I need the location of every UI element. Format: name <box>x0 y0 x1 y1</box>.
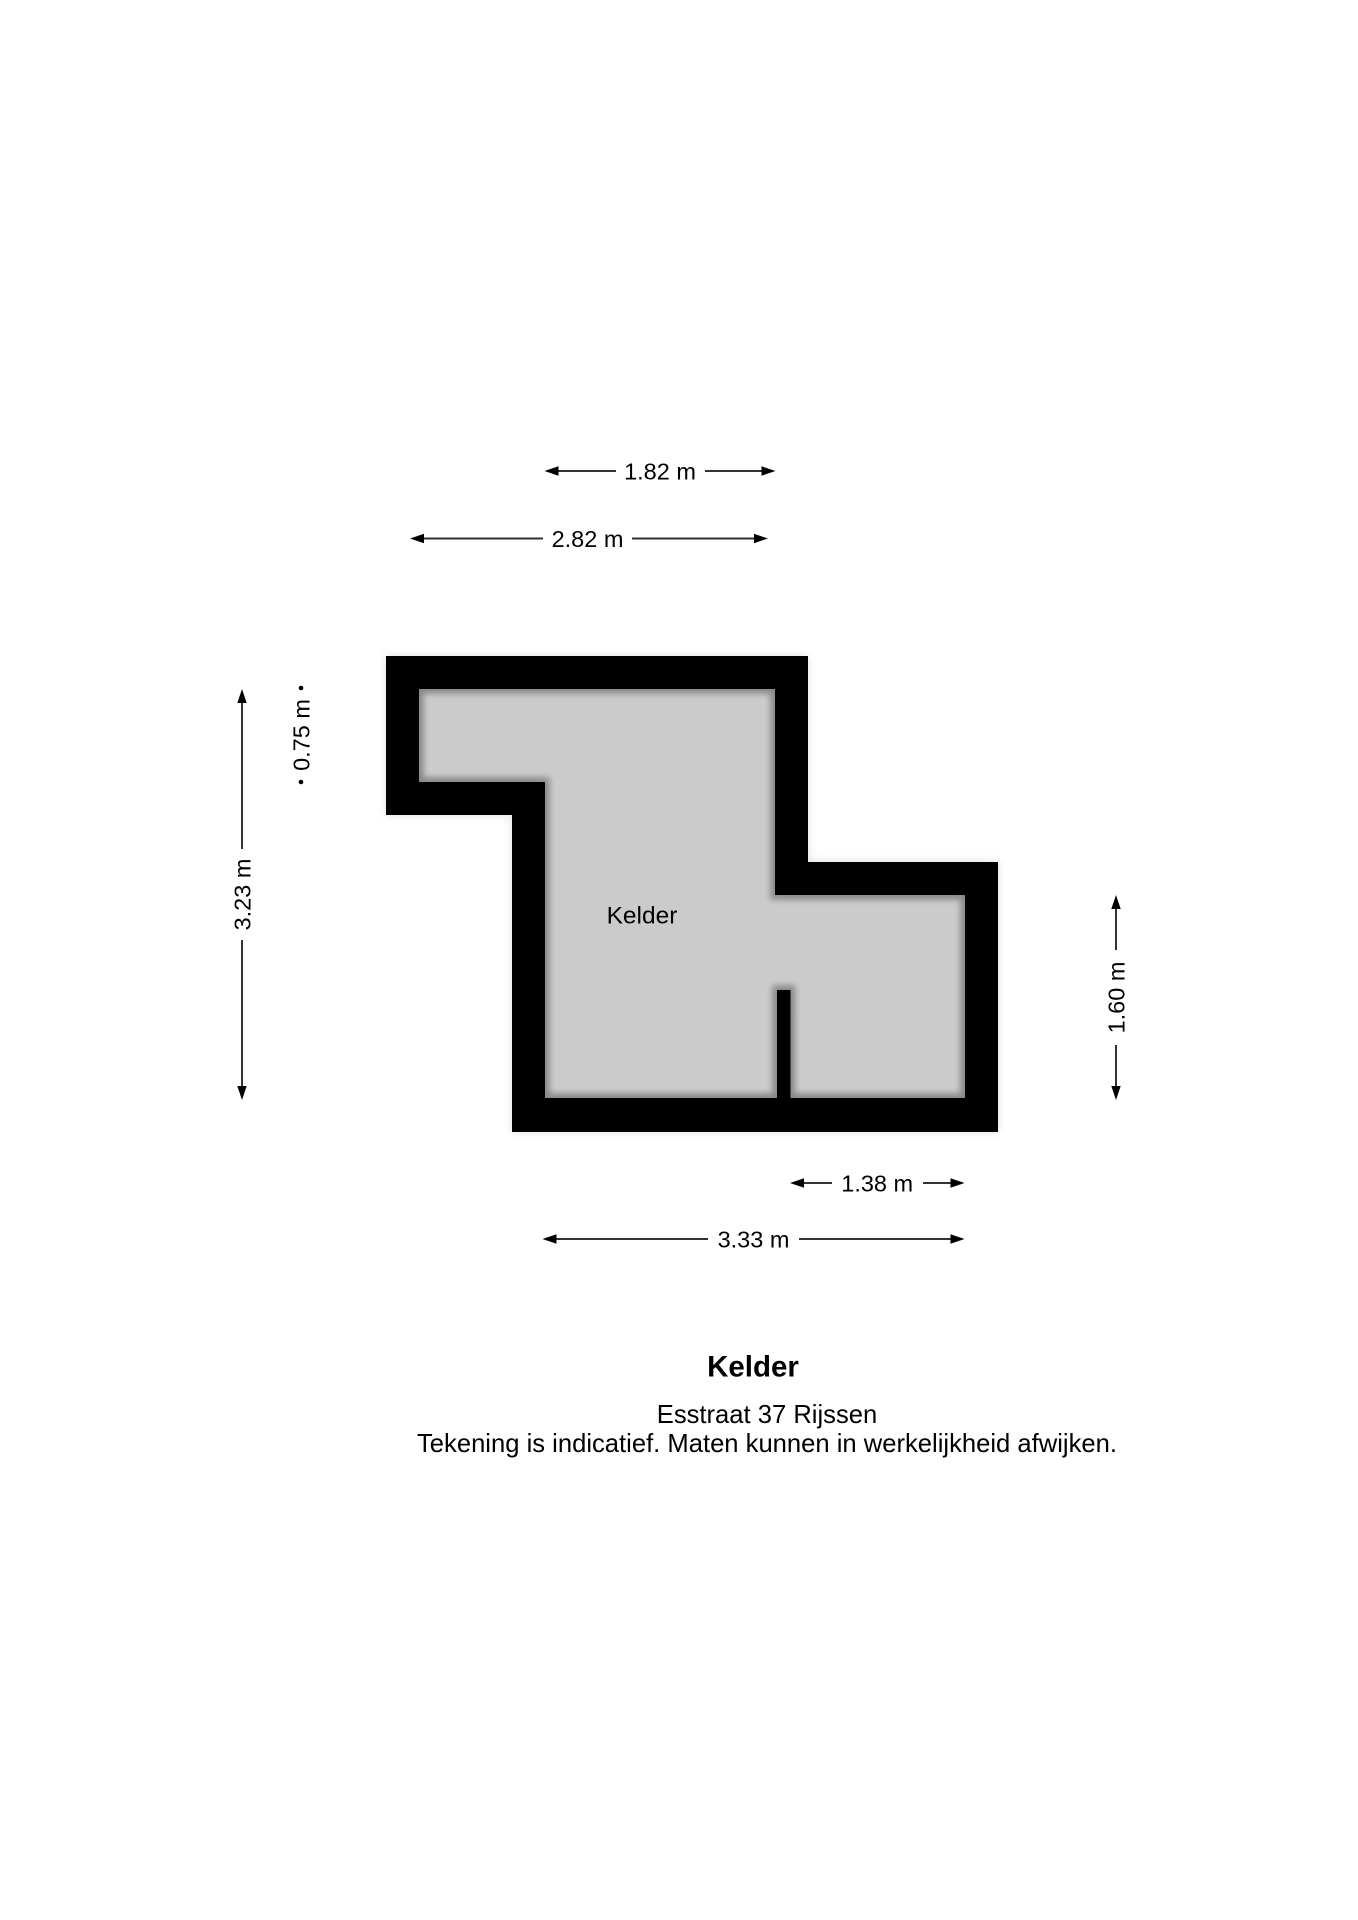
svg-text:1.82 m: 1.82 m <box>624 458 696 484</box>
svg-text:1.60 m: 1.60 m <box>1103 962 1129 1034</box>
svg-text:3.33 m: 3.33 m <box>718 1226 790 1252</box>
svg-text:Esstraat 37 Rijssen: Esstraat 37 Rijssen <box>657 1401 877 1429</box>
svg-text:Kelder: Kelder <box>707 1351 799 1384</box>
svg-text:2.82 m: 2.82 m <box>552 526 624 552</box>
svg-text:3.23 m: 3.23 m <box>229 859 255 931</box>
svg-text:1.38 m: 1.38 m <box>841 1170 913 1196</box>
svg-text:0.75 m: 0.75 m <box>288 699 314 771</box>
svg-text:Kelder: Kelder <box>607 902 678 929</box>
svg-text:Tekening is indicatief. Maten: Tekening is indicatief. Maten kunnen in … <box>417 1430 1117 1458</box>
